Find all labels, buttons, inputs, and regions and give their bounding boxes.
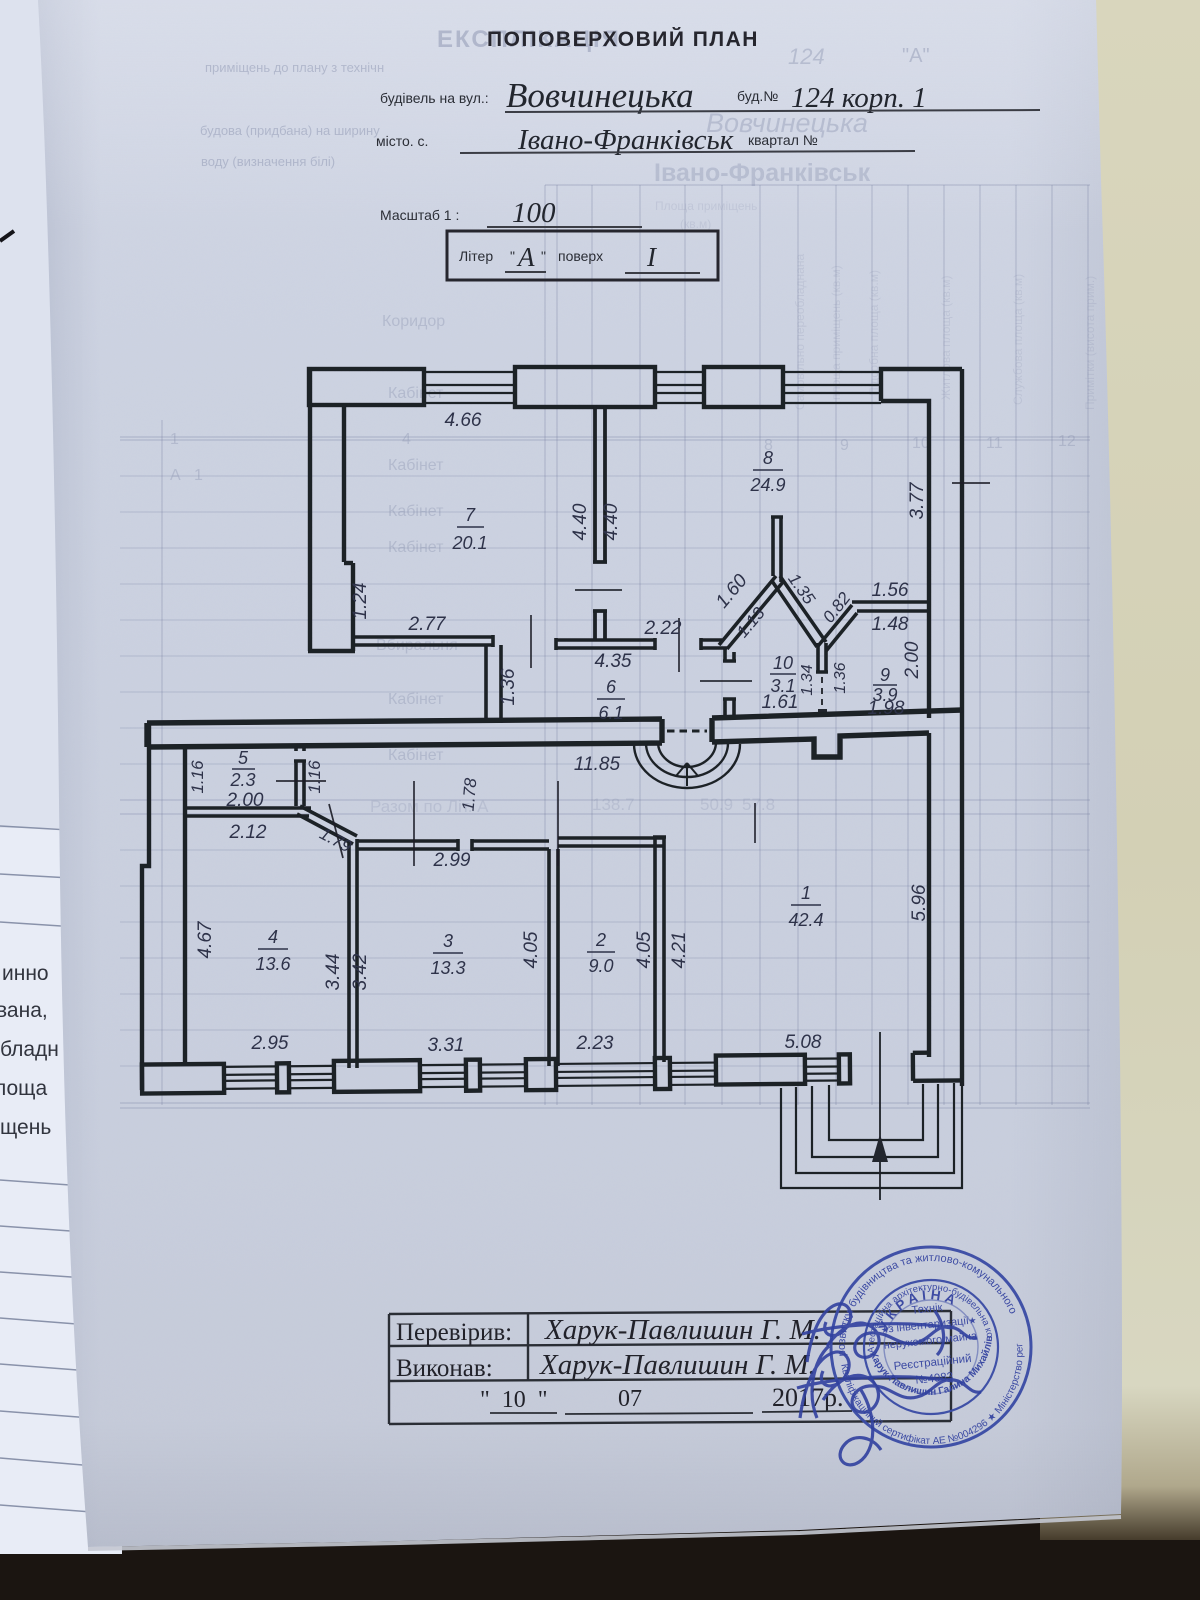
svg-text:4.05: 4.05 xyxy=(521,931,542,968)
svg-text:1.16: 1.16 xyxy=(305,760,324,794)
svg-text:воду (визначення білі): воду (визначення білі) xyxy=(201,154,335,169)
svg-text:Коридор: Коридор xyxy=(382,313,445,330)
svg-text:Житлова площа (кв.м): Житлова площа (кв.м) xyxy=(939,276,953,400)
svg-text:07: 07 xyxy=(618,1386,642,1412)
svg-text:3.77: 3.77 xyxy=(907,481,928,519)
svg-text:2.00: 2.00 xyxy=(226,790,264,811)
svg-text:Примітки (висота прим.): Примітки (висота прим.) xyxy=(1083,276,1097,410)
svg-text:9.0: 9.0 xyxy=(588,956,613,976)
svg-text:Масштаб 1 :: Масштаб 1 : xyxy=(380,207,459,223)
svg-text:Самовільно переобладнана: Самовільно переобладнана xyxy=(793,254,807,410)
svg-text:": " xyxy=(541,248,546,264)
svg-text:24.9: 24.9 xyxy=(749,475,785,495)
svg-text:площа приміщень (кв.м): площа приміщень (кв.м) xyxy=(829,265,843,400)
svg-text:4: 4 xyxy=(402,431,411,448)
svg-text:ПОПОВЕРХОВИЙ ПЛАН: ПОПОВЕРХОВИЙ ПЛАН xyxy=(487,27,759,51)
svg-text:1.61: 1.61 xyxy=(762,692,799,713)
svg-text:": " xyxy=(510,248,515,264)
svg-text:1.56: 1.56 xyxy=(872,580,909,601)
svg-text:1.36: 1.36 xyxy=(498,668,519,705)
svg-text:2.12: 2.12 xyxy=(229,822,267,843)
svg-text:буд.№: буд.№ xyxy=(737,88,778,104)
svg-text:Площа приміщень: Площа приміщень xyxy=(655,199,757,213)
svg-text:8: 8 xyxy=(763,448,773,468)
svg-text:2: 2 xyxy=(595,930,606,950)
svg-text:Харук-Павлишин Г. М.: Харук-Павлишин Г. М. xyxy=(544,1314,821,1346)
svg-text:4: 4 xyxy=(268,927,278,947)
svg-text:приміщень до плану з технічн: приміщень до плану з технічн xyxy=(205,60,384,75)
svg-text:5: 5 xyxy=(238,748,249,768)
svg-text:57.8: 57.8 xyxy=(742,795,775,814)
svg-text:1.34: 1.34 xyxy=(799,664,816,695)
svg-text:1.78: 1.78 xyxy=(459,777,481,812)
svg-text:квартал №: квартал № xyxy=(748,132,818,148)
svg-text:Івано-Франківськ: Івано-Франківськ xyxy=(654,159,871,187)
svg-text:2.99: 2.99 xyxy=(433,850,471,871)
svg-text:20.1: 20.1 xyxy=(451,533,487,553)
svg-text:9: 9 xyxy=(880,665,890,685)
svg-text:5.08: 5.08 xyxy=(785,1032,822,1053)
svg-text:2.77: 2.77 xyxy=(408,614,447,635)
svg-text:поверх: поверх xyxy=(558,248,603,264)
svg-text:7: 7 xyxy=(465,505,476,525)
svg-text:13.6: 13.6 xyxy=(255,954,291,974)
svg-text:2.95: 2.95 xyxy=(251,1033,289,1054)
svg-text:3.42: 3.42 xyxy=(350,953,371,990)
svg-text:1.24: 1.24 xyxy=(350,583,371,620)
svg-text:4.67: 4.67 xyxy=(195,920,216,958)
svg-text:6: 6 xyxy=(606,677,617,697)
svg-text:1.36: 1.36 xyxy=(832,662,849,693)
svg-text:★: ★ xyxy=(968,1315,977,1326)
svg-text:бладн: бладн xyxy=(0,1038,59,1061)
svg-text:4.40: 4.40 xyxy=(601,503,622,540)
svg-text:Виконав:: Виконав: xyxy=(396,1355,493,1382)
svg-text:Кабінет: Кабінет xyxy=(388,503,444,520)
svg-text:12: 12 xyxy=(1058,433,1076,450)
svg-text:1.98: 1.98 xyxy=(868,698,905,719)
svg-text:(кв.м): (кв.м) xyxy=(680,217,711,231)
svg-text:4.35: 4.35 xyxy=(595,651,632,672)
svg-text:А: А xyxy=(516,242,535,272)
svg-text:Кабінет: Кабінет xyxy=(388,691,444,708)
svg-text:Вовчинецька: Вовчинецька xyxy=(506,76,694,115)
svg-text:124: 124 xyxy=(788,44,825,69)
svg-text:4.40: 4.40 xyxy=(570,503,591,540)
svg-text:50.9: 50.9 xyxy=(700,795,733,814)
svg-text:2.23: 2.23 xyxy=(576,1033,614,1054)
svg-text:Кабінет: Кабінет xyxy=(388,457,444,474)
svg-text:3.31: 3.31 xyxy=(428,1035,465,1056)
svg-text:11.85: 11.85 xyxy=(574,754,621,775)
svg-text:будова (придбана) на ширину: будова (придбана) на ширину xyxy=(200,123,380,138)
svg-text:щень: щень xyxy=(0,1116,51,1139)
svg-text:1: 1 xyxy=(801,883,811,903)
svg-text:2.3: 2.3 xyxy=(229,770,255,790)
svg-text:Кабінет: Кабінет xyxy=(388,539,444,556)
svg-text:4.21: 4.21 xyxy=(669,932,690,969)
svg-text:Перевірив:: Перевірив: xyxy=(396,1319,512,1346)
svg-text:Службова площа (кв.м): Службова площа (кв.м) xyxy=(1011,274,1025,405)
svg-text:лоща: лоща xyxy=(0,1077,47,1100)
svg-text:3: 3 xyxy=(443,931,453,951)
svg-text:138.7: 138.7 xyxy=(592,795,635,814)
svg-text:2.00: 2.00 xyxy=(902,641,923,679)
svg-text:6.1: 6.1 xyxy=(598,703,623,723)
svg-text:місто. с.: місто. с. xyxy=(376,133,428,149)
svg-text:42.4: 42.4 xyxy=(788,910,823,930)
svg-text:5.96: 5.96 xyxy=(909,884,930,921)
svg-text:Літер: Літер xyxy=(459,248,493,264)
svg-text:11: 11 xyxy=(986,435,1003,452)
svg-text:1.16: 1.16 xyxy=(188,760,207,794)
svg-text:100: 100 xyxy=(512,197,556,229)
svg-text:124 корп. 1: 124 корп. 1 xyxy=(791,82,927,114)
svg-text:4.66: 4.66 xyxy=(445,410,482,431)
svg-text:1.48: 1.48 xyxy=(872,614,909,635)
svg-text:будівель на вул.:: будівель на вул.: xyxy=(380,90,489,106)
svg-text:А 1: А 1 xyxy=(170,467,203,484)
svg-text:инно: инно xyxy=(2,962,49,985)
svg-text:3.44: 3.44 xyxy=(323,954,344,991)
svg-text:2.22: 2.22 xyxy=(644,618,682,639)
svg-text:13.3: 13.3 xyxy=(430,958,465,978)
svg-text:4.05: 4.05 xyxy=(634,931,655,968)
svg-text:9: 9 xyxy=(840,437,849,454)
svg-text:"А": "А" xyxy=(902,45,930,67)
svg-text:вана,: вана, xyxy=(0,999,48,1022)
svg-text:" 10 ": " 10 " xyxy=(480,1387,548,1413)
svg-text:Харук-Павлишин Г. М.: Харук-Павлишин Г. М. xyxy=(539,1349,816,1381)
svg-text:10: 10 xyxy=(773,653,793,673)
svg-text:Кабінет: Кабінет xyxy=(388,747,444,764)
svg-text:1: 1 xyxy=(170,431,179,448)
